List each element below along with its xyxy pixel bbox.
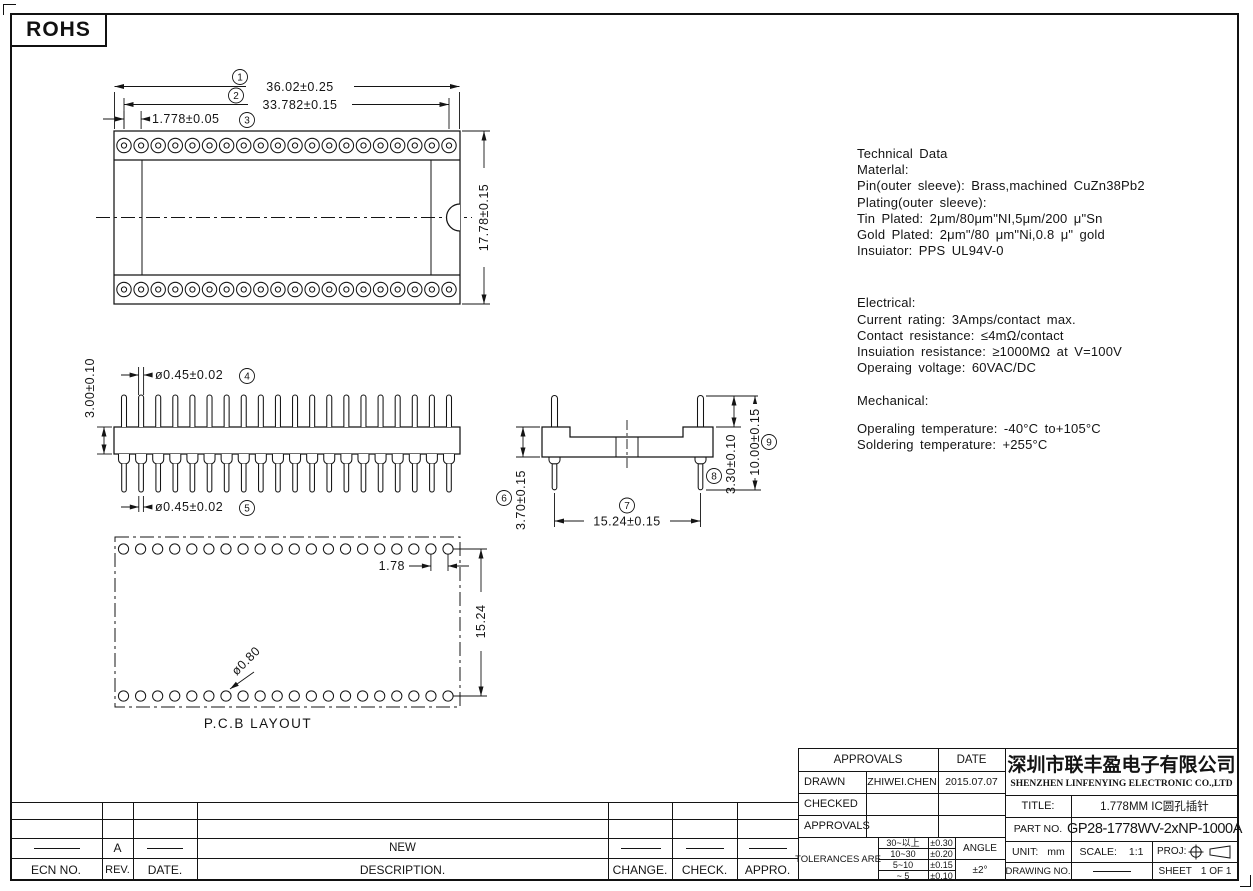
rev-header-change: CHANGE. <box>608 858 672 881</box>
pcb-layout-view: 1.78 15.24 ø0.80 P.C.B LAYOUT <box>115 537 489 731</box>
drawing-no-label: DRAWING NO. <box>1005 862 1071 881</box>
rev-check-dash <box>686 848 724 849</box>
dim-pcb-pitch: 1.78 <box>379 559 405 573</box>
checked-label: CHECKED <box>804 793 858 815</box>
end-view <box>542 396 713 490</box>
rev-header-description: DESCRIPTION. <box>197 858 608 881</box>
scale-value: 1:1 <box>1129 846 1144 858</box>
company-name-en: SHENZHEN LINFENYING ELECTRONIC CO.,LTD <box>1005 776 1238 792</box>
rev-header-appro: APPRO. <box>737 858 798 881</box>
rev-header-check: CHECK. <box>672 858 737 881</box>
dim-insulator-height: 3.00±0.10 <box>83 358 97 418</box>
dim-pin-dia-bottom: ø0.45±0.02 <box>155 500 223 514</box>
rev-appro-dash <box>749 848 787 849</box>
tech-line: Electrical: <box>857 295 1145 311</box>
drawing-no-dash <box>1093 871 1131 872</box>
title-value: 1.778MM IC圆孔插针 <box>1071 795 1238 817</box>
dim-row-spacing: 15.24±0.15 <box>593 515 660 529</box>
tech-line: Insuiation resistance: ≥1000MΩ at V=100V <box>857 344 1145 360</box>
engineering-drawing: 36.02±0.25 1 33.782±0.15 2 1.778±0.05 3 <box>0 0 850 745</box>
title-label: TITLE: <box>1005 795 1071 817</box>
part-no-value: GP28-1778WV-2xNP-1000A <box>1071 817 1238 841</box>
rev-date-dash <box>147 848 183 849</box>
callout-3: 3 <box>244 116 250 127</box>
rev-value: A <box>102 838 133 858</box>
tech-line: Mechanical: <box>857 393 1145 409</box>
company-name-cn: 深圳市联丰盈电子有限公司 <box>1005 750 1238 776</box>
rev-change-dash <box>621 848 661 849</box>
side-view-pins <box>119 395 455 492</box>
sheet-value: 1 OF 1 <box>1201 866 1232 877</box>
tolerance-value-1: ±0.30 <box>928 837 955 848</box>
top-view <box>96 131 472 304</box>
tech-line: Operaling temperature: -40°C to+105°C <box>857 421 1145 437</box>
sheet-cell: SHEET1 OF 1 <box>1152 862 1238 881</box>
side-view-dimensions: 3.00±0.10 ø0.45±0.02 4 ø0.45±0.02 5 <box>83 358 255 516</box>
tech-line: Technical Data <box>857 146 1145 162</box>
callout-8: 8 <box>711 472 717 483</box>
tolerance-range-3: 5~10 <box>878 859 928 870</box>
technical-data: Technical Data Materlal: Pin(outer sleev… <box>857 146 1145 453</box>
end-view-dimensions: 3.70±0.15 6 15.24±0.15 7 3.30±0.10 8 <box>497 396 777 530</box>
dim-overall-width: 36.02±0.25 <box>266 80 333 94</box>
tech-line: Soldering temperature: +255°C <box>857 437 1145 453</box>
unit-cell: UNIT:mm <box>1005 841 1071 862</box>
sheet-label: SHEET <box>1159 866 1192 877</box>
dim-pcb-hole: ø0.80 <box>229 644 263 678</box>
tech-line: Operaing voltage: 60VAC/DC <box>857 360 1145 376</box>
callout-6: 6 <box>501 494 507 505</box>
tolerance-range-2: 10~30 <box>878 848 928 859</box>
rev-description: NEW <box>197 838 608 858</box>
tolerance-value-3: ±0.15 <box>928 859 955 870</box>
tech-line: Current rating: 3Amps/contact max. <box>857 312 1145 328</box>
projection-symbol-icon <box>1188 844 1234 860</box>
dim-pin-dia-top: ø0.45±0.02 <box>155 368 223 382</box>
callout-5: 5 <box>244 504 250 515</box>
corner-mark-bottomright <box>1240 875 1251 887</box>
polarity-notch <box>447 204 460 231</box>
drawing-sheet: ROHS 36.02±0.25 1 <box>0 0 1253 891</box>
rev-header-ecn: ECN NO. <box>10 858 102 881</box>
dim-top-pin-length: 3.30±0.10 <box>724 434 738 494</box>
side-view <box>114 395 460 492</box>
pcb-layout-label: P.C.B LAYOUT <box>204 716 312 731</box>
rev-header-rev: REV. <box>102 858 133 881</box>
tolerance-value-4: ±0.10 <box>928 870 955 881</box>
dim-pcb-row: 15.24 <box>474 605 488 639</box>
dim-pitch: 1.778±0.05 <box>152 112 219 126</box>
dim-body-height: 17.78±0.15 <box>477 184 491 251</box>
tolerance-range-4: ~ 5 <box>878 870 928 881</box>
unit-value: mm <box>1047 846 1065 858</box>
pcb-outline <box>115 537 460 707</box>
dim-tail-length: 3.70±0.15 <box>514 470 528 530</box>
drawn-date: 2015.07.07 <box>938 771 1005 793</box>
drawn-name: ZHIWEI.CHEN <box>866 771 938 793</box>
tech-line: Pin(outer sleeve): Brass,machined CuZn38… <box>857 178 1145 194</box>
angle-label: ANGLE <box>955 837 1005 859</box>
dim-total-height: 10.00±0.15 <box>748 408 762 475</box>
tolerance-range-1: 30~以上 <box>878 837 928 848</box>
scale-cell: SCALE:1:1 <box>1071 841 1152 862</box>
tech-line: Insuiator: PPS UL94V-0 <box>857 243 1145 259</box>
callout-4: 4 <box>244 372 250 383</box>
tech-line: Plating(outer sleeve): <box>857 195 1145 211</box>
approvals-label: APPROVALS <box>804 815 870 837</box>
angle-value: ±2° <box>955 859 1005 881</box>
rev-header-date: DATE. <box>133 858 197 881</box>
dim-pin-span: 33.782±0.15 <box>263 98 338 112</box>
callout-1: 1 <box>237 73 243 84</box>
drawn-label: DRAWN <box>804 771 845 793</box>
tech-line: Tin Plated: 2μm/80μm"NI,5μm/200 μ"Sn <box>857 211 1145 227</box>
scale-label: SCALE: <box>1080 846 1117 858</box>
tech-line: Contact resistance: ≤4mΩ/contact <box>857 328 1145 344</box>
callout-2: 2 <box>233 91 239 102</box>
tolerance-value-2: ±0.20 <box>928 848 955 859</box>
rev-ecn-dash <box>34 848 80 849</box>
proj-cell: PROJ: <box>1152 841 1238 862</box>
tolerances-label: TOLERANCES ARE <box>798 837 878 881</box>
proj-label: PROJ: <box>1157 846 1186 857</box>
date-header: DATE <box>938 748 1005 771</box>
callout-9: 9 <box>766 438 772 449</box>
part-no-label: PART NO. <box>1005 817 1071 841</box>
tech-line: Gold Plated: 2μm"/80 μm"Ni,0.8 μ" gold <box>857 227 1145 243</box>
top-view-dimensions: 36.02±0.25 1 33.782±0.15 2 1.778±0.05 3 <box>103 70 492 305</box>
approvals-header: APPROVALS <box>798 748 938 771</box>
tech-line: Materlal: <box>857 162 1145 178</box>
unit-label: UNIT: <box>1012 846 1038 858</box>
callout-7: 7 <box>624 501 630 512</box>
